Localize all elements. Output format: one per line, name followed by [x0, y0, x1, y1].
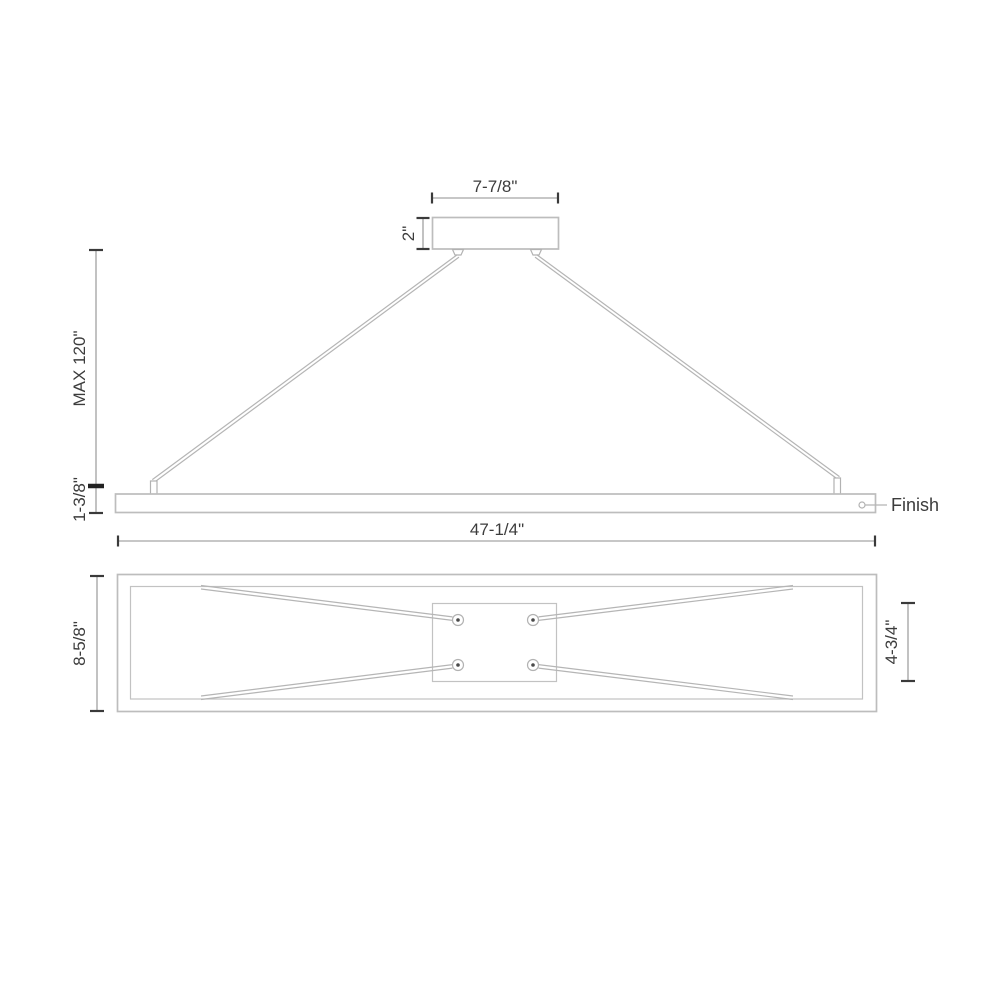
- canopy-height-dimension: 2": [399, 218, 430, 249]
- fixture-depth-value: 8-5/8": [70, 621, 89, 666]
- screw-slot: [456, 663, 460, 667]
- cable-line: [535, 257, 838, 479]
- screw-slot: [456, 618, 460, 622]
- cable-stem-left: [151, 481, 158, 495]
- screw-slot: [531, 663, 535, 667]
- canopy-plate-dimension: 4-3/4": [882, 603, 915, 681]
- fixture-bar-outline: [116, 494, 876, 513]
- side-view: 7-7/8" 2": [70, 177, 939, 547]
- spec-sheet-page: 7-7/8" 2": [0, 0, 1000, 1000]
- canopy-width-dimension: 7-7/8": [432, 177, 558, 204]
- canopy-plate-value: 4-3/4": [882, 620, 901, 665]
- screw-slot: [531, 618, 535, 622]
- finish-label: Finish: [891, 495, 939, 515]
- suspension-cable-right: [535, 255, 840, 480]
- suspension-cable-left: [152, 255, 459, 483]
- max-height-value: MAX 120": [70, 331, 89, 407]
- canopy-cable-fitting-left: [453, 250, 464, 256]
- canopy-outline: [433, 218, 559, 250]
- cable-line: [537, 255, 840, 477]
- fixture-depth-dimension: 8-5/8": [70, 576, 104, 711]
- cable-stem-right: [834, 478, 841, 495]
- fixture-length-value: 47-1/4": [470, 520, 524, 539]
- finish-callout-marker: [859, 502, 865, 508]
- fixture-height-value: 1-3/8": [70, 477, 89, 522]
- canopy-cable-fitting-right: [531, 250, 542, 256]
- fixture-length-dimension: 47-1/4": [118, 520, 875, 547]
- canopy-height-value: 2": [399, 226, 418, 242]
- cable-line: [155, 257, 460, 482]
- bottom-view: 8-5/8" 4-3/4": [70, 575, 915, 712]
- cable-line: [152, 255, 457, 480]
- dimension-drawing: 7-7/8" 2": [0, 0, 1000, 1000]
- canopy-width-value: 7-7/8": [473, 177, 518, 196]
- max-height-dimension: MAX 120" 1-3/8": [70, 250, 104, 522]
- canopy-plate-outline: [433, 604, 557, 682]
